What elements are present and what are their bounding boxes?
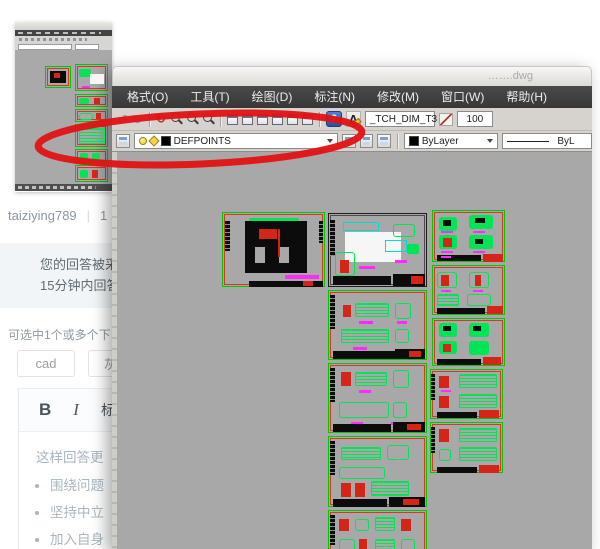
thumb-statusbar	[15, 184, 112, 191]
drawing-sheet	[430, 369, 503, 419]
dim-style-value: _TCH_DIM_T3	[370, 114, 437, 125]
menu-item[interactable]: 标注(N)	[303, 86, 366, 108]
dim-scale-icon[interactable]	[439, 113, 453, 126]
cad-menubar: 格式(O)工具(T)绘图(D)标注(N)修改(M)窗口(W)帮助(H)	[112, 86, 592, 108]
color-select[interactable]: ByLayer	[404, 133, 499, 149]
drawing-sheet	[45, 66, 71, 88]
quick-calc-icon[interactable]	[302, 114, 313, 125]
drawing-sheet	[75, 64, 108, 91]
username-link[interactable]: taiziying789	[8, 208, 77, 223]
dim-scale-field[interactable]: 100	[457, 111, 493, 127]
menu-item[interactable]: 修改(M)	[366, 86, 430, 108]
toolbar-separator	[220, 112, 221, 127]
bold-button[interactable]: B	[39, 400, 51, 420]
toolbar-separator	[397, 134, 398, 149]
layer-color-swatch	[161, 136, 171, 146]
menu-item[interactable]: 绘图(D)	[241, 86, 304, 108]
drawing-sheet	[75, 94, 108, 107]
layer-properties-button[interactable]	[116, 134, 130, 148]
thumb-toolbar	[15, 36, 112, 43]
zoom-previous-icon[interactable]	[202, 112, 214, 126]
menu-item[interactable]: 窗口(W)	[430, 86, 495, 108]
menu-item[interactable]: 帮助(H)	[495, 86, 558, 108]
italic-button[interactable]: I	[73, 400, 79, 420]
drawing-sheet	[75, 149, 108, 163]
orbit-icon[interactable]: ↻	[156, 113, 166, 125]
sheet-set-icon[interactable]	[287, 114, 298, 125]
drawing-sheet	[328, 436, 427, 507]
chevron-down-icon	[487, 139, 493, 143]
thumb-layer-toolbar	[15, 43, 112, 50]
zoom-realtime-icon[interactable]	[170, 112, 182, 126]
thumb-layer-select	[18, 44, 72, 50]
current-layer-name: DEFPOINTS	[174, 136, 231, 147]
markup-set-icon[interactable]	[272, 114, 283, 125]
dim-style-select[interactable]: _TCH_DIM_T3	[365, 111, 435, 127]
zoom-window-icon[interactable]	[186, 112, 198, 126]
linetype-sample-line	[507, 141, 549, 142]
drawing-sheet	[75, 165, 108, 182]
drawing-sheet	[75, 124, 108, 147]
drawing-sheet	[432, 265, 505, 315]
cad-titlebar[interactable]: …….dwg	[112, 66, 592, 86]
text-style-icon[interactable]: A	[346, 111, 361, 127]
color-value: ByLayer	[422, 136, 459, 147]
drawing-sheet	[75, 109, 108, 122]
menu-item[interactable]: 工具(T)	[179, 86, 240, 108]
tag-cad[interactable]: cad	[17, 350, 75, 377]
drawing-sheet	[430, 422, 503, 473]
layer-previous-button[interactable]	[360, 134, 374, 148]
cad-standard-toolbar: ↺ ↻ ↻ ? A _TCH_DIM_T3 100	[112, 108, 592, 131]
undo-icon[interactable]: ↺	[117, 113, 128, 126]
toolbar-separator	[149, 112, 150, 127]
drawing-sheet	[328, 290, 427, 360]
color-swatch	[409, 136, 419, 146]
tool-palettes-icon[interactable]	[257, 114, 268, 125]
cad-layer-toolbar: DEFPOINTS ByLayer ByL	[112, 131, 592, 152]
chevron-down-icon	[327, 139, 333, 143]
thumb-color-select	[75, 44, 99, 50]
answer-count: 1	[100, 208, 107, 223]
layer-select[interactable]: DEFPOINTS	[134, 133, 338, 149]
designcenter-icon[interactable]	[242, 114, 253, 125]
help-icon[interactable]: ?	[326, 111, 342, 127]
cad-drawing-canvas[interactable]	[112, 152, 592, 549]
thumbnail-cad-window	[15, 22, 112, 192]
menu-item[interactable]: 格式(O)	[116, 86, 179, 108]
docked-toolbar-sliver	[112, 152, 117, 549]
layer-on-bulb-icon[interactable]	[139, 137, 147, 145]
cad-window: …….dwg 格式(O)工具(T)绘图(D)标注(N)修改(M)窗口(W)帮助(…	[112, 66, 592, 549]
drawing-sheet	[328, 213, 427, 287]
screenshot-root: taiziying789 | 1 您的回答被采 15分钟内回答 可选中1个或多个…	[0, 0, 600, 549]
drawing-sheet	[328, 510, 427, 549]
redo-icon[interactable]: ↻	[132, 113, 143, 126]
thumb-titlebar	[15, 22, 112, 30]
drawing-sheet	[328, 363, 427, 433]
answer-meta-row: taiziying789 | 1	[8, 208, 107, 223]
cad-window-title: …….dwg	[488, 70, 533, 82]
layer-states-button[interactable]	[377, 134, 391, 148]
drawing-sheet	[432, 318, 505, 366]
toolbar-separator	[319, 112, 320, 127]
tag-hint-text: 可选中1个或多个下	[8, 326, 111, 343]
drawing-sheet	[222, 212, 325, 287]
properties-palette-icon[interactable]	[227, 114, 238, 125]
layer-freeze-sun-icon[interactable]	[148, 135, 159, 146]
separator: |	[87, 208, 90, 223]
thumb-drawing-canvas	[15, 50, 112, 184]
linetype-value: ByL	[557, 136, 574, 147]
linetype-select[interactable]: ByL	[502, 133, 592, 149]
make-layer-current-button[interactable]	[342, 134, 356, 148]
drawing-sheet	[432, 210, 505, 262]
